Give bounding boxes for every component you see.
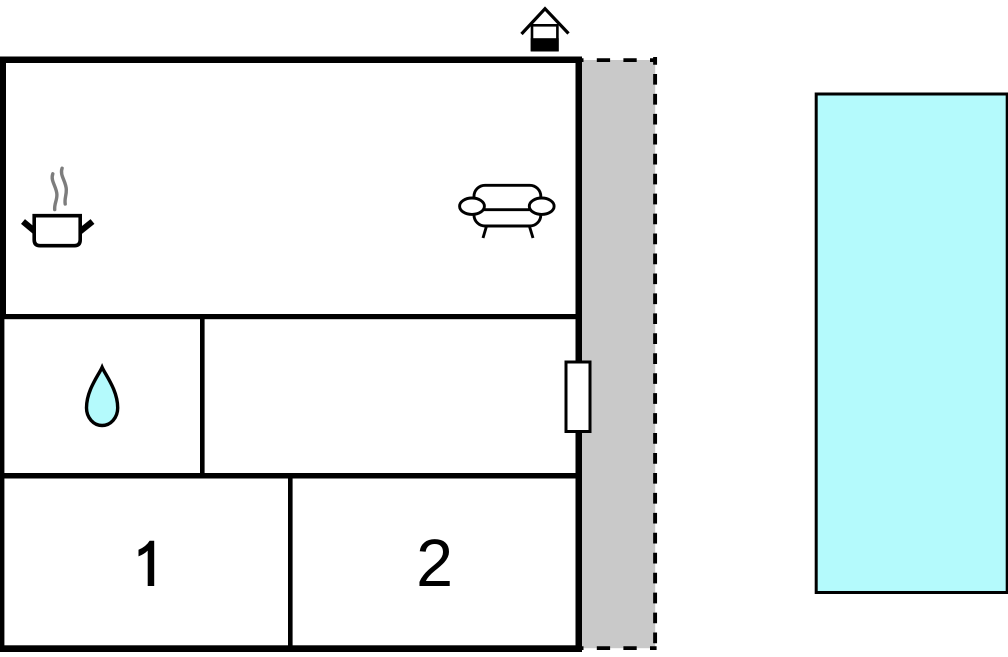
svg-text:2: 2 (416, 527, 453, 601)
